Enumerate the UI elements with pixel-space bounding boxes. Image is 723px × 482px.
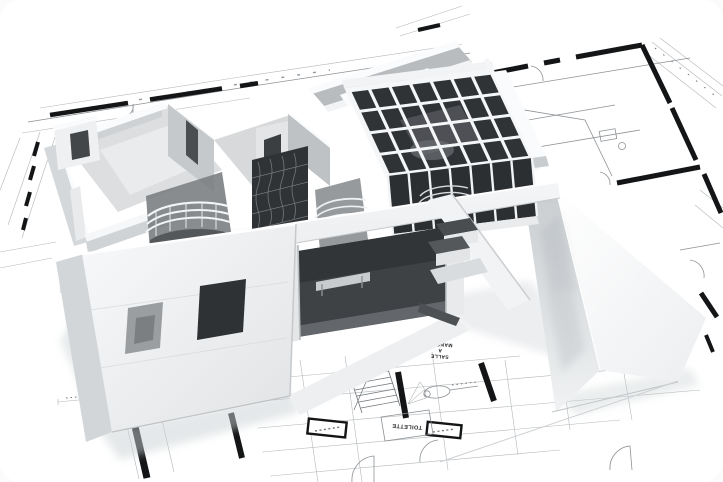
facade-window bbox=[197, 279, 246, 340]
screenshot: TOILETTE SALLE A MANGER bbox=[0, 0, 723, 482]
architectural-render: TOILETTE SALLE A MANGER bbox=[0, 0, 723, 482]
photo-canvas: TOILETTE SALLE A MANGER bbox=[0, 0, 723, 482]
label-box-1 bbox=[307, 419, 346, 438]
